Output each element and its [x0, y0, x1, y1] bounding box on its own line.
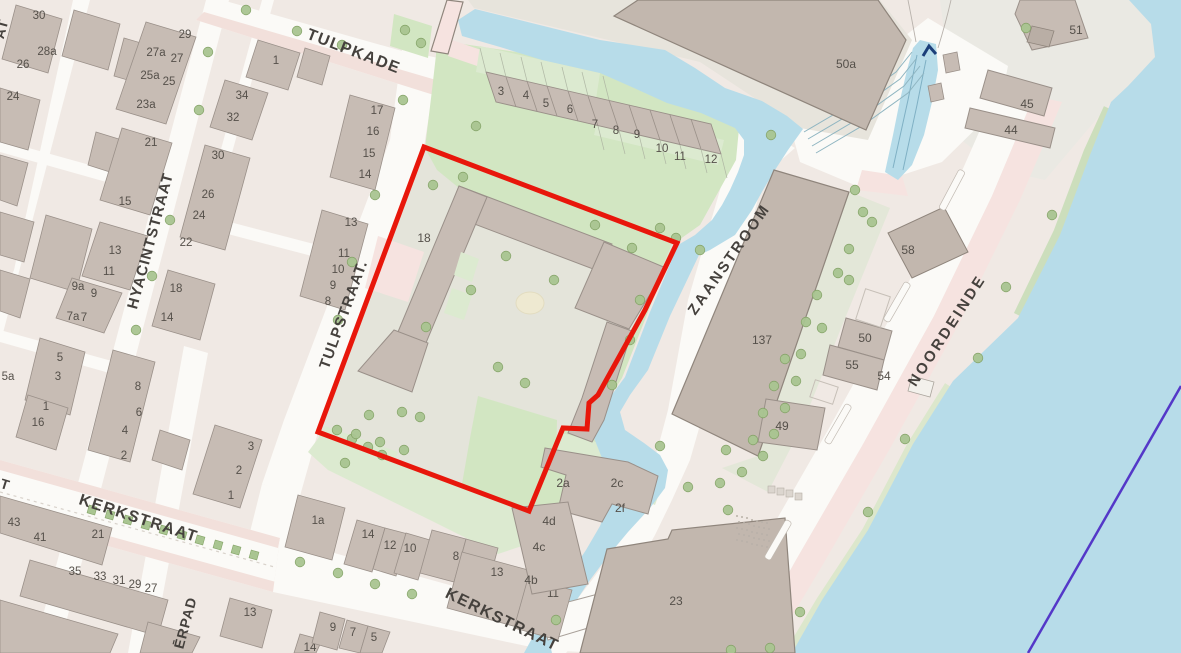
- svg-text:54: 54: [877, 369, 891, 383]
- svg-text:33: 33: [94, 571, 107, 583]
- svg-text:10: 10: [656, 143, 669, 155]
- svg-text:8: 8: [613, 125, 619, 137]
- svg-text:27: 27: [171, 53, 184, 65]
- svg-text:55: 55: [845, 358, 859, 372]
- svg-text:51: 51: [1069, 23, 1083, 37]
- svg-text:23: 23: [669, 594, 683, 608]
- svg-text:18: 18: [417, 231, 431, 245]
- svg-text:43: 43: [8, 517, 21, 529]
- svg-text:8: 8: [325, 296, 331, 308]
- svg-text:50: 50: [858, 331, 872, 345]
- svg-text:27: 27: [145, 583, 158, 595]
- svg-text:26: 26: [17, 59, 30, 71]
- svg-text:6: 6: [136, 407, 142, 419]
- svg-text:3: 3: [498, 86, 504, 98]
- svg-text:12: 12: [384, 540, 397, 552]
- svg-text:41: 41: [34, 532, 47, 544]
- svg-text:44: 44: [1004, 123, 1018, 137]
- svg-text:45: 45: [1020, 97, 1034, 111]
- svg-text:21: 21: [145, 137, 158, 149]
- svg-text:16: 16: [32, 417, 45, 429]
- svg-text:4c: 4c: [533, 540, 546, 554]
- svg-text:13: 13: [244, 607, 257, 619]
- svg-text:8: 8: [135, 381, 141, 393]
- svg-text:5: 5: [57, 352, 63, 364]
- svg-text:16: 16: [367, 126, 380, 138]
- svg-text:11: 11: [103, 266, 115, 278]
- svg-text:8: 8: [453, 551, 459, 563]
- svg-text:23a: 23a: [136, 99, 156, 111]
- svg-text:4: 4: [122, 425, 129, 437]
- svg-text:9: 9: [634, 129, 640, 141]
- svg-text:137: 137: [752, 333, 772, 347]
- svg-text:24: 24: [193, 210, 206, 222]
- svg-text:30: 30: [212, 150, 225, 162]
- svg-text:32: 32: [227, 112, 240, 124]
- svg-text:2f: 2f: [615, 501, 626, 515]
- svg-text:11: 11: [674, 151, 686, 163]
- svg-text:29: 29: [179, 29, 192, 41]
- svg-text:1: 1: [43, 401, 49, 413]
- svg-text:34: 34: [236, 90, 249, 102]
- svg-text:13: 13: [109, 245, 122, 257]
- svg-text:18: 18: [170, 283, 183, 295]
- svg-text:10: 10: [404, 543, 417, 555]
- svg-text:3: 3: [55, 371, 61, 383]
- svg-text:10: 10: [332, 264, 345, 276]
- svg-text:58: 58: [901, 243, 915, 257]
- svg-text:7: 7: [350, 627, 356, 639]
- svg-text:14: 14: [359, 169, 372, 181]
- svg-text:13: 13: [345, 217, 358, 229]
- svg-text:2a: 2a: [556, 476, 570, 490]
- svg-text:1a: 1a: [312, 515, 325, 527]
- svg-text:15: 15: [119, 196, 132, 208]
- svg-text:14: 14: [362, 529, 375, 541]
- svg-text:15: 15: [363, 148, 376, 160]
- svg-text:7: 7: [592, 119, 598, 131]
- svg-text:35: 35: [69, 566, 82, 578]
- svg-text:1: 1: [228, 490, 234, 502]
- svg-text:4: 4: [523, 90, 530, 102]
- svg-text:2: 2: [121, 450, 127, 462]
- svg-text:5a: 5a: [2, 371, 15, 383]
- svg-text:14: 14: [161, 312, 174, 324]
- svg-text:6: 6: [567, 104, 573, 116]
- svg-text:26: 26: [202, 189, 215, 201]
- svg-text:4b: 4b: [524, 573, 538, 587]
- svg-text:9a: 9a: [72, 281, 85, 293]
- svg-text:21: 21: [92, 529, 105, 541]
- svg-text:7a: 7a: [67, 311, 80, 323]
- svg-text:31: 31: [113, 575, 126, 587]
- svg-text:4d: 4d: [542, 514, 555, 528]
- svg-text:27a: 27a: [146, 47, 166, 59]
- svg-text:30: 30: [33, 10, 46, 22]
- svg-text:2: 2: [236, 465, 242, 477]
- svg-text:5: 5: [543, 98, 549, 110]
- svg-text:12: 12: [705, 154, 718, 166]
- svg-text:17: 17: [371, 105, 384, 117]
- svg-text:25: 25: [163, 76, 176, 88]
- svg-text:5: 5: [371, 632, 377, 644]
- svg-text:24: 24: [7, 91, 20, 103]
- svg-text:9: 9: [91, 288, 97, 300]
- svg-text:9: 9: [330, 622, 336, 634]
- svg-text:9: 9: [330, 280, 336, 292]
- svg-text:1: 1: [273, 55, 279, 67]
- svg-text:7: 7: [81, 312, 87, 324]
- svg-text:50a: 50a: [836, 57, 856, 71]
- svg-text:28a: 28a: [37, 46, 57, 58]
- svg-text:22: 22: [180, 237, 193, 249]
- svg-text:25a: 25a: [140, 70, 160, 82]
- svg-text:3: 3: [248, 441, 254, 453]
- svg-text:2c: 2c: [611, 476, 624, 490]
- svg-text:29: 29: [129, 579, 142, 591]
- svg-text:11: 11: [338, 248, 350, 260]
- svg-text:13: 13: [491, 567, 504, 579]
